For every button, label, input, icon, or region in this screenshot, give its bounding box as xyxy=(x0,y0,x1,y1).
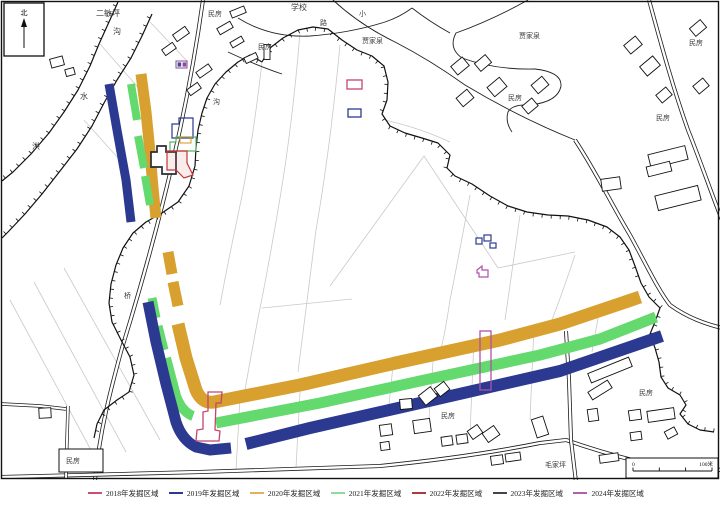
building xyxy=(601,177,621,192)
map-label: 贾家泉 xyxy=(519,31,540,40)
building xyxy=(196,64,212,78)
building xyxy=(490,455,503,466)
legend-swatch-2020 xyxy=(250,492,264,494)
legend-swatch-2019 xyxy=(169,492,183,494)
legend-label: 2020年发掘区域 xyxy=(268,488,321,499)
scale-bar: 0100米 xyxy=(626,458,718,478)
map-label: 桥 xyxy=(124,291,131,300)
building xyxy=(162,42,177,55)
legend-item-2021: 2021年发掘区域 xyxy=(331,488,402,499)
map-label: 民房 xyxy=(656,113,670,122)
building xyxy=(380,441,390,450)
legend-swatch-2021 xyxy=(331,492,345,494)
building xyxy=(630,431,642,440)
excavation-trench-layer xyxy=(109,74,662,450)
building xyxy=(456,434,468,444)
map-canvas: 二敏坪民房学校小路贾家泉民房贾家泉民房民房民房沟水洪沟桥民房民房毛家坪民房北01… xyxy=(0,0,720,480)
map-label: 民房 xyxy=(66,456,80,465)
map-label: 小 xyxy=(359,9,366,18)
building xyxy=(456,89,474,106)
legend-label: 2023年发掘区域 xyxy=(511,488,564,499)
building xyxy=(624,36,643,54)
map-label: 民房 xyxy=(441,411,455,420)
roads-layer xyxy=(2,0,720,480)
building xyxy=(655,185,701,210)
legend-item-2022: 2022年发掘区域 xyxy=(412,488,483,499)
map-label: 民房 xyxy=(508,93,522,102)
map-label: 学校 xyxy=(291,2,307,12)
building xyxy=(664,427,677,439)
map-label: 民房 xyxy=(689,38,703,47)
building xyxy=(230,6,247,18)
map-label: 毛家坪 xyxy=(545,460,566,469)
legend-label: 2018年发掘区域 xyxy=(106,488,159,499)
building xyxy=(628,409,641,421)
building xyxy=(531,416,548,438)
legend-item-2024: 2024年发掘区域 xyxy=(573,488,644,499)
map-label: 二敏坪 xyxy=(96,8,120,18)
building xyxy=(587,408,599,421)
map-label: 洪 xyxy=(32,141,40,151)
legend-item-2020: 2020年发掘区域 xyxy=(250,488,321,499)
building xyxy=(217,21,233,35)
building xyxy=(522,98,538,114)
scale-zero: 0 xyxy=(632,462,635,468)
map-label: 路 xyxy=(320,18,327,27)
legend-swatch-2023 xyxy=(493,492,507,494)
building xyxy=(505,452,521,462)
building xyxy=(413,418,432,433)
building xyxy=(39,408,52,419)
excavation-site-map: 二敏坪民房学校小路贾家泉民房贾家泉民房民房民房沟水洪沟桥民房民房毛家坪民房北01… xyxy=(0,0,720,506)
building xyxy=(647,408,675,423)
north-arrow: 北 xyxy=(4,3,44,56)
legend-swatch-2024 xyxy=(573,492,587,494)
building xyxy=(474,55,491,72)
building xyxy=(173,26,190,41)
map-legend: 2018年发掘区域 2019年发掘区域 2020年发掘区域 2021年发掘区域 … xyxy=(88,483,644,503)
building xyxy=(230,36,244,48)
building xyxy=(379,424,392,437)
labels-layer: 二敏坪民房学校小路贾家泉民房贾家泉民房民房民房沟水洪沟桥民房民房毛家坪民房 xyxy=(32,2,703,469)
building xyxy=(599,453,619,464)
building xyxy=(482,425,500,442)
scale-max: 100米 xyxy=(699,460,713,468)
building xyxy=(487,77,507,96)
building xyxy=(693,78,709,94)
map-label: 民房 xyxy=(258,42,272,51)
legend-label: 2021年发掘区域 xyxy=(349,488,402,499)
building xyxy=(467,424,483,439)
legend-label: 2024年发掘区域 xyxy=(591,488,644,499)
map-furniture-layer xyxy=(2,2,719,479)
building xyxy=(441,436,453,446)
map-label: 民房 xyxy=(639,388,653,397)
building xyxy=(640,56,661,76)
legend-item-2023: 2023年发掘区域 xyxy=(493,488,564,499)
map-label: 沟 xyxy=(113,26,121,36)
legend-swatch-2018 xyxy=(88,492,102,494)
legend-swatch-2022 xyxy=(412,492,426,494)
map-label: 民房 xyxy=(208,9,222,18)
legend-label: 2022年发掘区域 xyxy=(430,488,483,499)
map-label: 贾家泉 xyxy=(362,36,383,45)
legend-label: 2019年发掘区域 xyxy=(187,488,240,499)
building xyxy=(400,398,413,409)
building xyxy=(50,56,65,68)
building xyxy=(65,67,76,76)
map-label: 水 xyxy=(80,91,88,101)
map-label: 沟 xyxy=(213,97,220,106)
building xyxy=(531,76,549,93)
north-label: 北 xyxy=(21,9,28,17)
legend-item-2018: 2018年发掘区域 xyxy=(88,488,159,499)
building xyxy=(656,87,672,103)
building xyxy=(689,20,706,37)
legend-item-2019: 2019年发掘区域 xyxy=(169,488,240,499)
